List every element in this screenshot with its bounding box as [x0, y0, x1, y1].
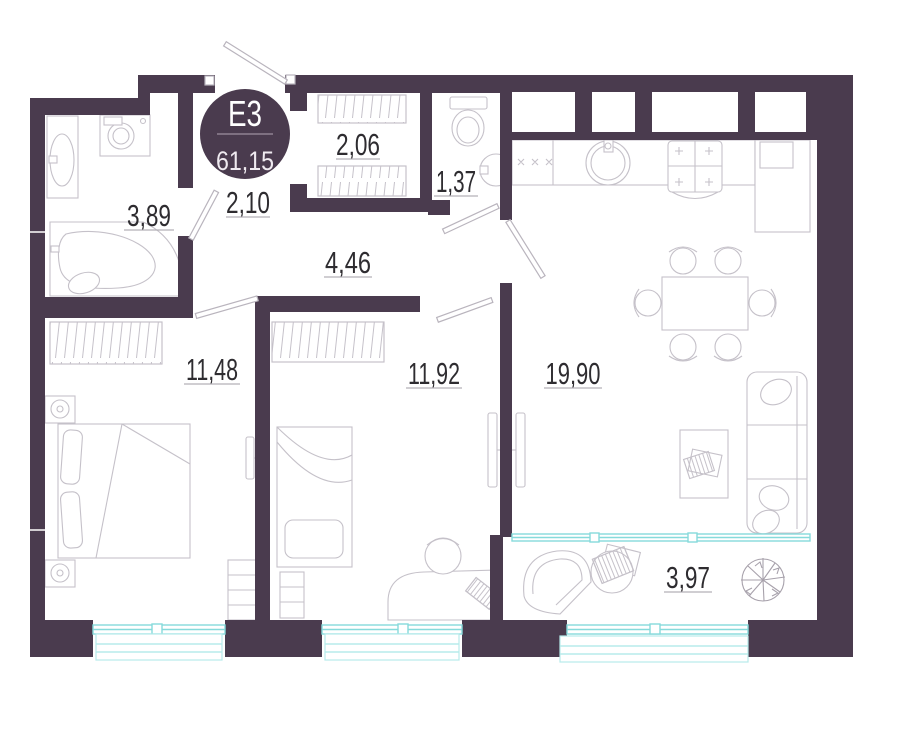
- lounge-chair: [524, 551, 591, 614]
- dining-chair: [714, 247, 742, 274]
- double-bed: [58, 424, 190, 558]
- dining-chair: [634, 289, 661, 317]
- bedroom2-door: [437, 298, 493, 323]
- bedroom2-furniture: [272, 322, 500, 620]
- wc-door: [443, 204, 499, 234]
- dining-table: [662, 277, 748, 330]
- door-stop: [205, 76, 214, 85]
- nightstand: [45, 560, 75, 587]
- area-label-hall: 2,10: [226, 185, 270, 220]
- washing-machine: [100, 115, 150, 156]
- area-label-bedroom1: 11,48: [186, 352, 238, 387]
- tv-living: [512, 413, 525, 487]
- area-label-bedroom2: 11,92: [408, 356, 460, 391]
- floorplan-page: E3 61,15 3,89 2,10 2,06 1,37 4,46 11,48 …: [0, 0, 904, 756]
- desk-chair: [425, 538, 461, 574]
- floorplan: E3 61,15 3,89 2,10 2,06 1,37 4,46 11,48 …: [0, 0, 904, 756]
- single-bed: [277, 427, 352, 567]
- wardrobe: [272, 322, 384, 362]
- dining-chair: [669, 334, 697, 361]
- dining-set: [634, 247, 776, 361]
- tv-bedroom2: [488, 413, 500, 487]
- area-label-balcony: 3,97: [666, 560, 710, 595]
- area-label-kitchen-living: 19,90: [546, 356, 601, 391]
- side-table: [591, 544, 640, 593]
- area-label-wc: 1,37: [436, 164, 476, 199]
- dining-chair: [714, 334, 742, 361]
- dresser: [228, 560, 256, 620]
- window-balcony: [560, 624, 748, 662]
- entrance-door: [224, 42, 288, 84]
- area-label-closet: 2,06: [336, 127, 380, 162]
- bathroom-door: [189, 190, 219, 240]
- nightstand: [45, 396, 75, 423]
- toilet: [450, 97, 487, 146]
- kitchen-fixtures: [512, 140, 810, 232]
- living-door: [506, 220, 545, 279]
- desk: [388, 538, 500, 620]
- vanity-sink: [47, 116, 78, 198]
- dining-chair: [669, 247, 697, 274]
- window-living-balcony: [512, 533, 810, 542]
- plant: [741, 558, 785, 601]
- bedroom1-door: [195, 296, 258, 318]
- wardrobe: [50, 322, 162, 364]
- coffee-table: [680, 430, 728, 498]
- badge-code: E3: [228, 93, 262, 134]
- balcony-furniture: [524, 544, 785, 614]
- bathtub: [50, 222, 184, 297]
- sofa: [747, 372, 807, 539]
- window-bedroom1: [93, 624, 225, 660]
- kitchen-sink: [586, 140, 630, 185]
- fridge: [755, 140, 810, 232]
- area-label-corridor: 4,46: [325, 245, 371, 280]
- badge-total-area: 61,15: [216, 146, 274, 176]
- chest-of-drawers: [280, 572, 304, 618]
- window-bedroom2: [322, 624, 462, 660]
- area-badge: E3 61,15: [200, 89, 290, 179]
- dining-chair: [749, 289, 776, 317]
- stove: [668, 141, 722, 199]
- area-label-bathroom: 3,89: [127, 198, 171, 233]
